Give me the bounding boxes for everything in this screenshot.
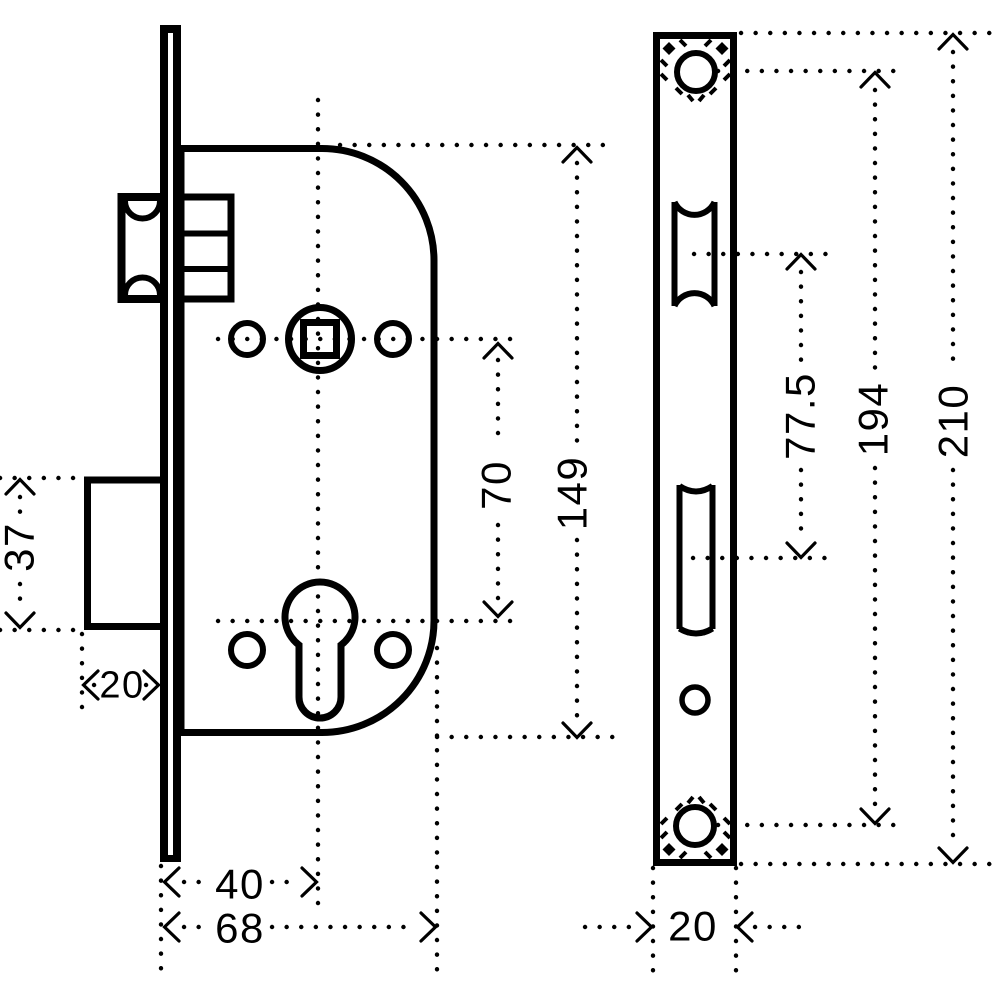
technical-drawing: 149 70 37 20 (0, 0, 1000, 1000)
dim-deadbolt-height: 37 (0, 478, 80, 630)
arrow-down-icon (787, 543, 815, 558)
lock-dimension-diagram: 149 70 37 20 (0, 0, 1000, 1000)
dim-149-label: 149 (549, 456, 596, 531)
dim-210-label: 210 (930, 384, 977, 459)
dim-77-5-label: 77.5 (777, 372, 824, 460)
faceplate-side-profile (160, 25, 181, 862)
latch-bolt-top-arc (125, 201, 160, 219)
arrow-up-icon (484, 344, 512, 359)
dim-68-label: 68 (215, 905, 265, 952)
arrow-up-icon (939, 35, 967, 50)
arrow-down-icon (484, 602, 512, 617)
deadbolt (88, 480, 161, 627)
arrow-right-icon (421, 913, 436, 941)
faceplate-edge-slot (168, 33, 173, 855)
dim-20-throw-label: 20 (99, 664, 144, 706)
dim-40-label: 40 (215, 861, 265, 908)
dim-faceplate-width: 20 (585, 868, 806, 972)
arrow-right-icon (302, 868, 317, 896)
arrow-right-icon (637, 913, 652, 941)
dim-deadbolt-throw: 20 (82, 634, 159, 712)
arrow-up-icon (563, 148, 591, 163)
arrow-up-icon (6, 480, 34, 495)
arrow-down-icon (861, 809, 889, 824)
dim-20-plate-label: 20 (668, 903, 718, 950)
latch-bolt (122, 197, 161, 299)
arrow-left-icon (165, 868, 180, 896)
side-view: 149 70 37 20 (0, 25, 620, 975)
dim-70-label: 70 (473, 460, 520, 510)
arrow-up-icon (787, 255, 815, 270)
dim-37-label: 37 (0, 522, 43, 572)
arrow-up-icon (861, 73, 889, 88)
arrow-down-icon (6, 613, 34, 628)
faceplate-outline (657, 36, 734, 863)
arrow-left-icon (738, 913, 753, 941)
latch-bolt-bottom-arc (125, 278, 160, 296)
dim-spindle-to-cylinder: 70 (473, 344, 520, 617)
arrow-down-icon (939, 848, 967, 863)
dim-194-label: 194 (850, 382, 897, 457)
faceplate-view: 210 194 77.5 (585, 33, 996, 972)
arrow-left-icon (165, 913, 180, 941)
